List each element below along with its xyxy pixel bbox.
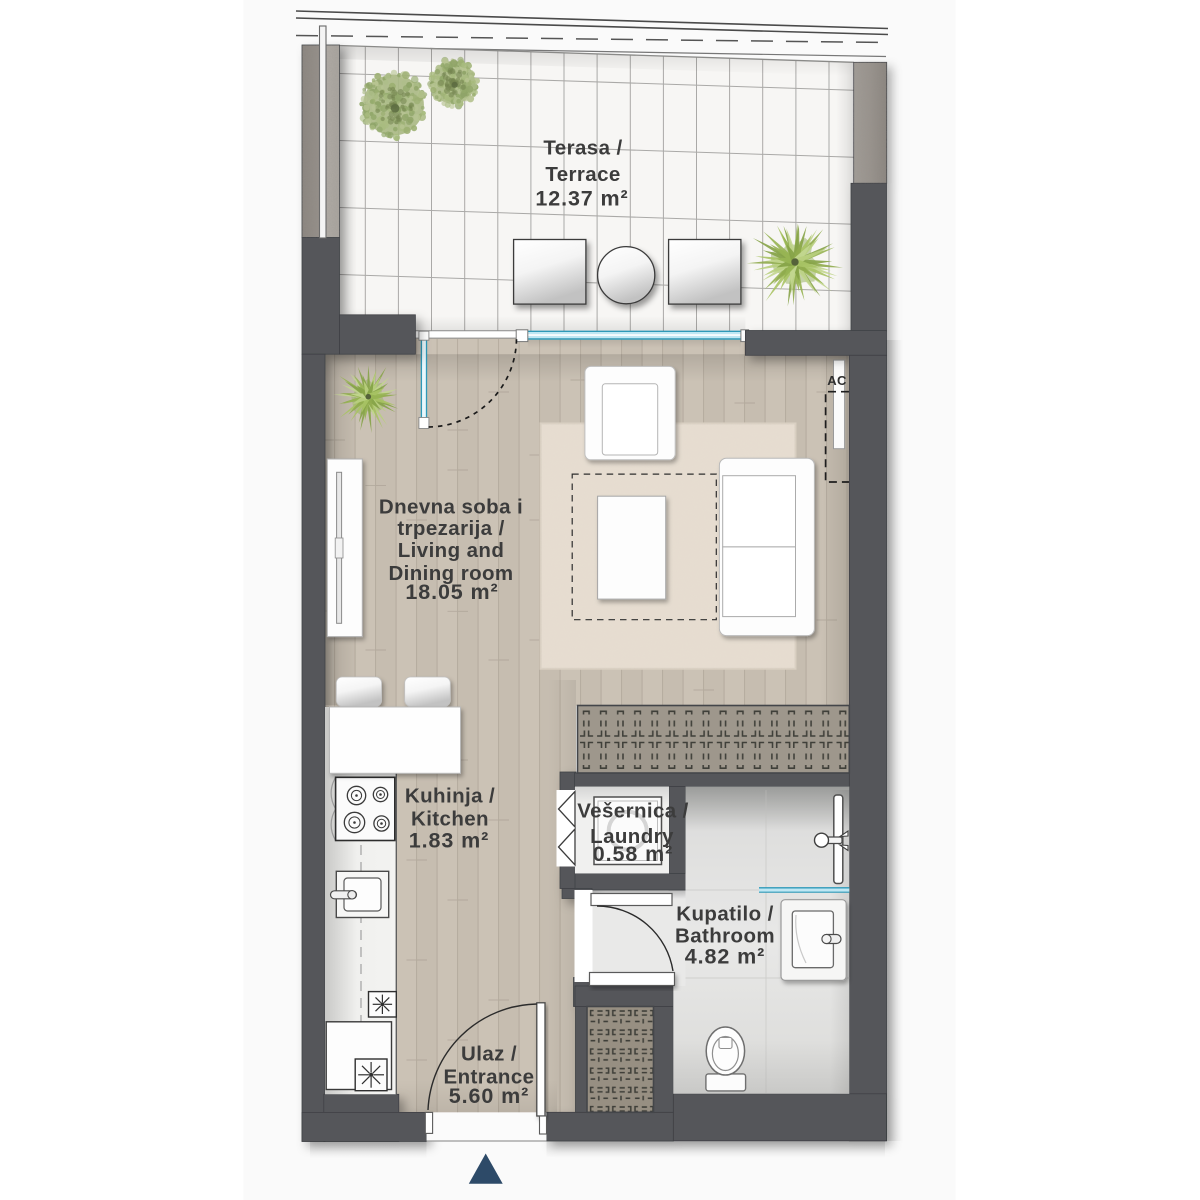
svg-text:5.60 m²: 5.60 m² — [449, 1084, 529, 1108]
svg-text:Ulaz /: Ulaz / — [461, 1043, 517, 1066]
svg-text:Kitchen: Kitchen — [411, 808, 489, 831]
svg-text:12.37 m²: 12.37 m² — [535, 187, 628, 211]
svg-text:1.83 m²: 1.83 m² — [409, 828, 489, 852]
svg-text:Kupatilo /: Kupatilo / — [676, 903, 773, 926]
svg-text:4.82 m²: 4.82 m² — [685, 945, 765, 969]
svg-text:Terasa /: Terasa / — [543, 136, 622, 159]
svg-text:Kuhinja /: Kuhinja / — [405, 785, 495, 808]
svg-text:Vešernica /: Vešernica / — [577, 800, 689, 823]
svg-text:Terrace: Terrace — [545, 163, 620, 186]
svg-text:trpezarija /: trpezarija / — [397, 517, 504, 540]
svg-text:AC: AC — [827, 373, 847, 388]
svg-text:Dnevna soba i: Dnevna soba i — [379, 495, 523, 518]
svg-text:18.05 m²: 18.05 m² — [405, 580, 498, 604]
svg-text:0.58 m²: 0.58 m² — [593, 842, 673, 866]
svg-text:Living and: Living and — [398, 539, 505, 562]
